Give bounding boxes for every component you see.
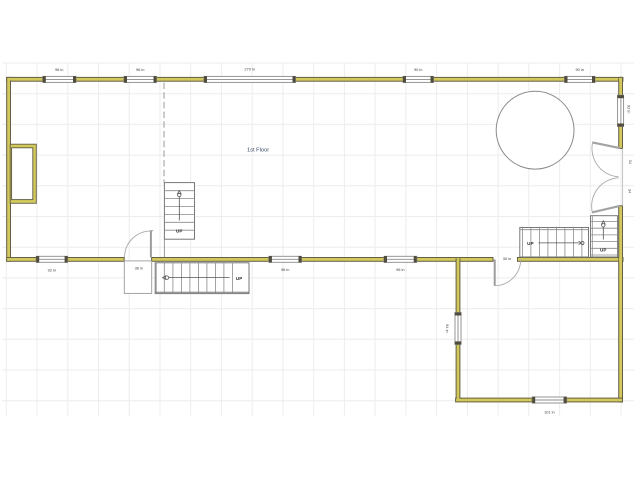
svg-text:92 in: 92 in: [48, 268, 56, 273]
svg-text:1st Floor: 1st Floor: [247, 147, 269, 153]
svg-text:96 in: 96 in: [136, 67, 144, 72]
svg-text:UP: UP: [176, 229, 183, 234]
svg-text:101 in: 101 in: [544, 409, 555, 414]
svg-text:UP: UP: [600, 247, 607, 252]
svg-text:UP: UP: [527, 241, 534, 246]
svg-text:90 in: 90 in: [575, 67, 583, 72]
svg-text:30 in: 30 in: [503, 256, 511, 261]
svg-text:270 in: 270 in: [244, 67, 255, 72]
svg-text:94 in: 94 in: [445, 324, 450, 332]
svg-text:96 in: 96 in: [55, 67, 63, 72]
svg-text:UP: UP: [236, 276, 243, 281]
svg-text:96 in: 96 in: [281, 267, 289, 272]
svg-text:36 in: 36 in: [135, 266, 143, 271]
svg-text:92 in: 92 in: [626, 105, 631, 113]
svg-text:90 in: 90 in: [414, 67, 422, 72]
svg-text:96 in: 96 in: [396, 267, 404, 272]
